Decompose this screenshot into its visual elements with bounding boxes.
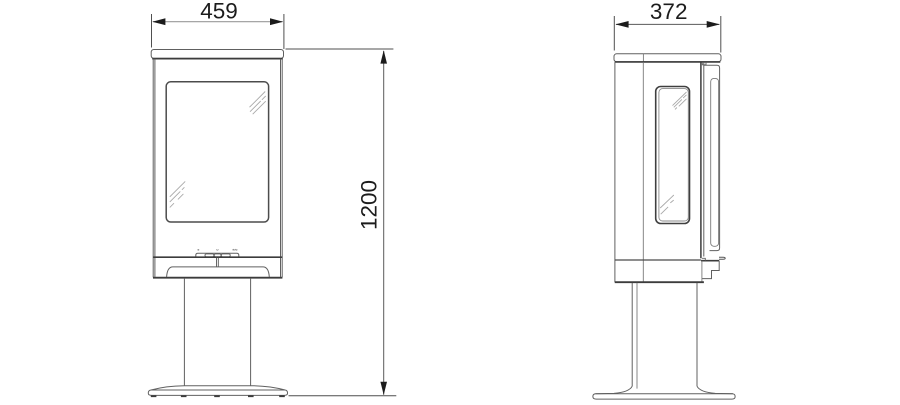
svg-text:372: 372 <box>650 0 688 24</box>
svg-text:459: 459 <box>200 0 238 23</box>
svg-text:1200: 1200 <box>357 180 382 230</box>
